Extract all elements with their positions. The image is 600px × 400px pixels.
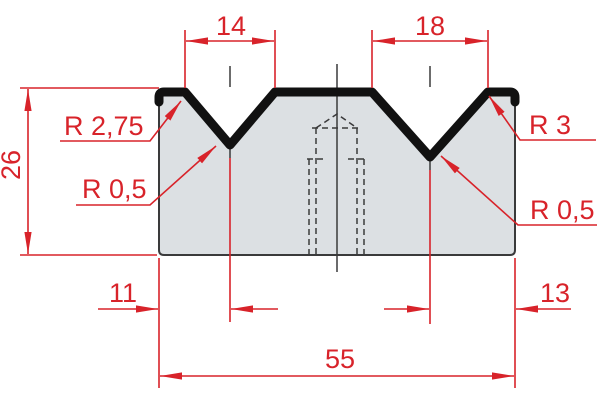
dim-v1-offset-value: 11 (109, 278, 137, 308)
radius-v2-bottom-label: R 0,5 (530, 195, 595, 225)
dim-v2-opening-value: 18 (415, 11, 445, 41)
dim-v1-opening-value: 14 (216, 11, 246, 41)
technical-drawing: 14 18 26 R 2,75 R 0,5 R 3 R 0,5 (0, 0, 600, 400)
radius-v1-shoulder-label: R 2,75 (64, 111, 144, 141)
die-body-group (159, 64, 515, 272)
dimension-total-width: 55 (160, 344, 514, 376)
dim-v2-offset-value: 13 (540, 278, 570, 308)
radius-v1-bottom-label: R 0,5 (82, 174, 147, 204)
dim-body-height-value: 26 (0, 150, 26, 180)
dim-total-width-value: 55 (325, 344, 355, 374)
radius-v2-shoulder-label: R 3 (529, 110, 571, 140)
